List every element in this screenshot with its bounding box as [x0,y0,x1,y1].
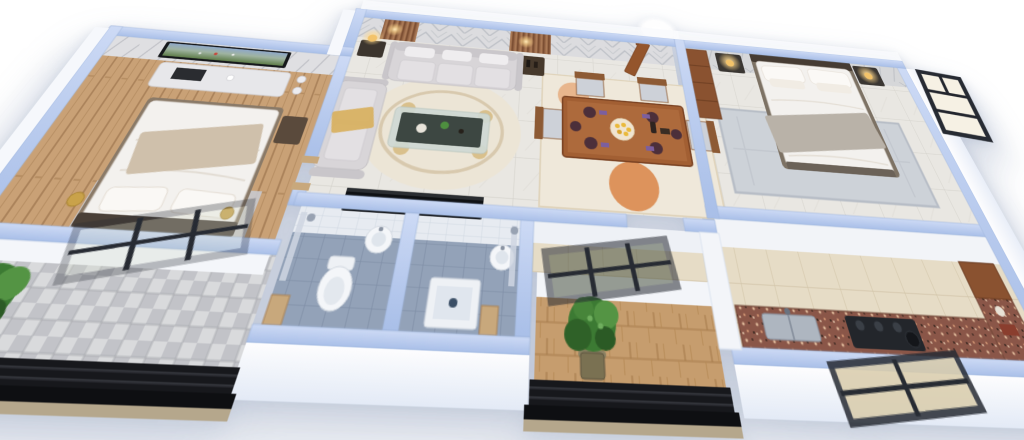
apartment-3d-scene [0,0,1024,440]
dining-chair [576,78,604,97]
floorplan-render [0,0,1024,440]
bedroom1-door-frame [291,182,311,191]
wood-ledge [479,306,499,336]
wall-dining-hall [683,218,717,233]
pillow [97,187,170,211]
dining-chair [639,83,668,102]
bedroom1-door-frame [300,156,319,164]
hall-leaning-window [545,239,678,302]
dining-chair [543,108,565,139]
kitchen-window [831,354,983,424]
plant-pot [580,352,605,379]
chair-back [534,106,543,139]
grey-throw [764,113,887,153]
